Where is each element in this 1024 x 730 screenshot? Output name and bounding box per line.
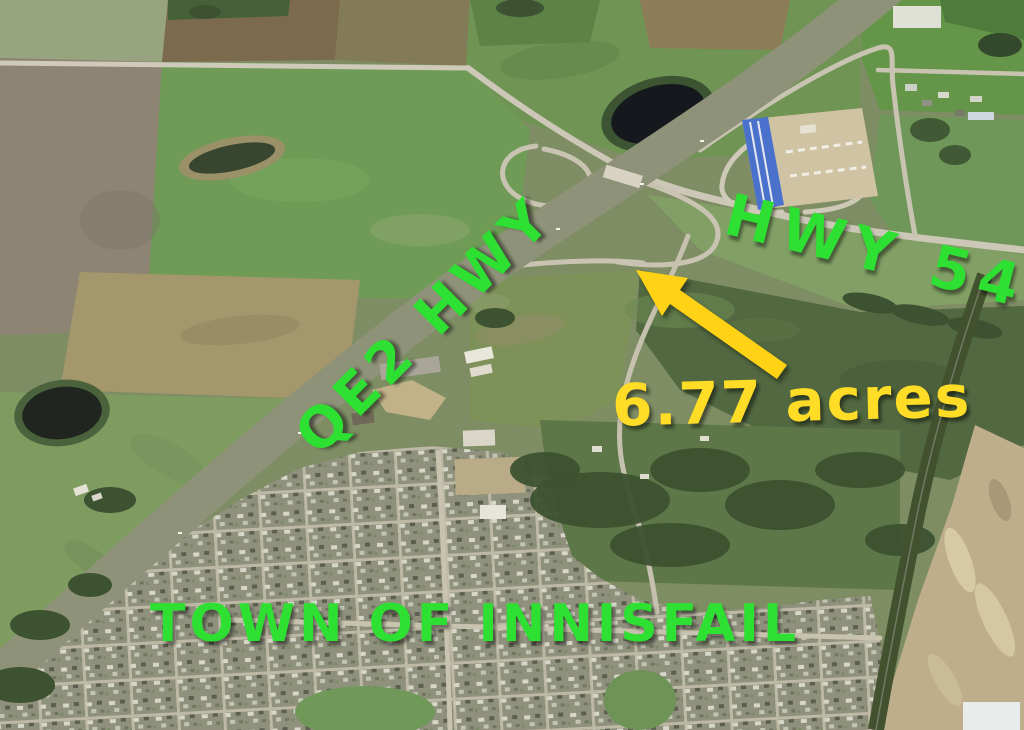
annotated-aerial-map: QE2 HWY HWY 54 6.77 acres TOWN OF INNISF… xyxy=(0,0,1024,730)
warehouse-roof xyxy=(963,702,1020,730)
label-acreage: 6.77 acres xyxy=(611,367,972,434)
park-2 xyxy=(604,670,676,730)
label-town-of-innisfail: TOWN OF INNISFAIL xyxy=(150,598,800,650)
